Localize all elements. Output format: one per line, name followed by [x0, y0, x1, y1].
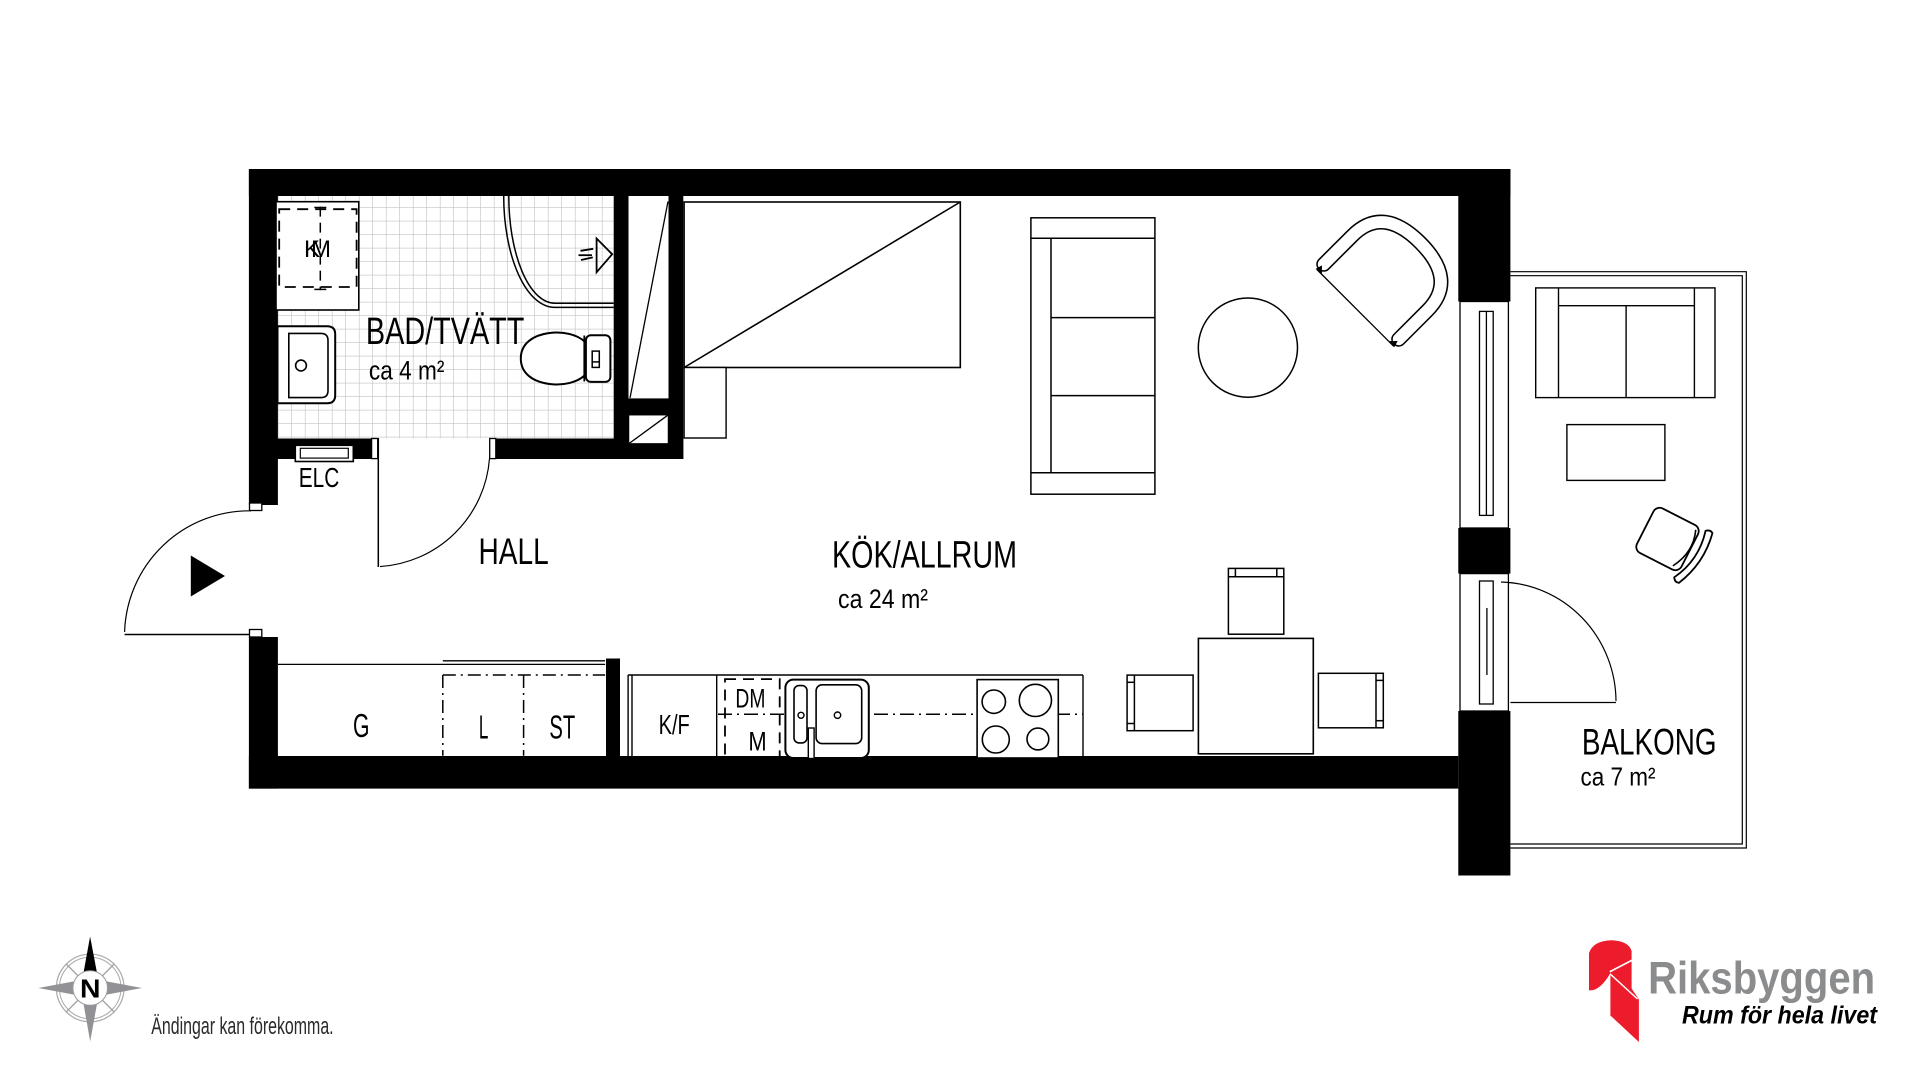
svg-text:DM: DM: [735, 684, 765, 714]
svg-text:ca 24 m²: ca 24 m²: [838, 584, 928, 614]
svg-text:ST: ST: [549, 709, 575, 746]
svg-text:K/F: K/F: [659, 709, 690, 740]
svg-text:BAD/TVÄTT: BAD/TVÄTT: [366, 311, 525, 353]
svg-text:HALL: HALL: [479, 531, 549, 572]
svg-text:G: G: [353, 707, 370, 744]
svg-text:ca 4 m²: ca 4 m²: [369, 355, 445, 385]
svg-text:L: L: [479, 709, 489, 746]
svg-text:Rum för hela livet: Rum för hela livet: [1682, 1002, 1879, 1030]
svg-text:ELC: ELC: [299, 462, 340, 493]
svg-text:KM: KM: [304, 236, 331, 263]
svg-text:Riksbyggen: Riksbyggen: [1648, 953, 1875, 1004]
svg-text:KÖK/ALLRUM: KÖK/ALLRUM: [832, 535, 1017, 577]
svg-text:M: M: [748, 727, 766, 757]
svg-text:BALKONG: BALKONG: [1582, 722, 1717, 763]
svg-text:ca 7 m²: ca 7 m²: [1581, 762, 1656, 792]
svg-text:N: N: [80, 974, 101, 1004]
svg-text:Ändingar kan förekomma.: Ändingar kan förekomma.: [151, 1013, 333, 1040]
